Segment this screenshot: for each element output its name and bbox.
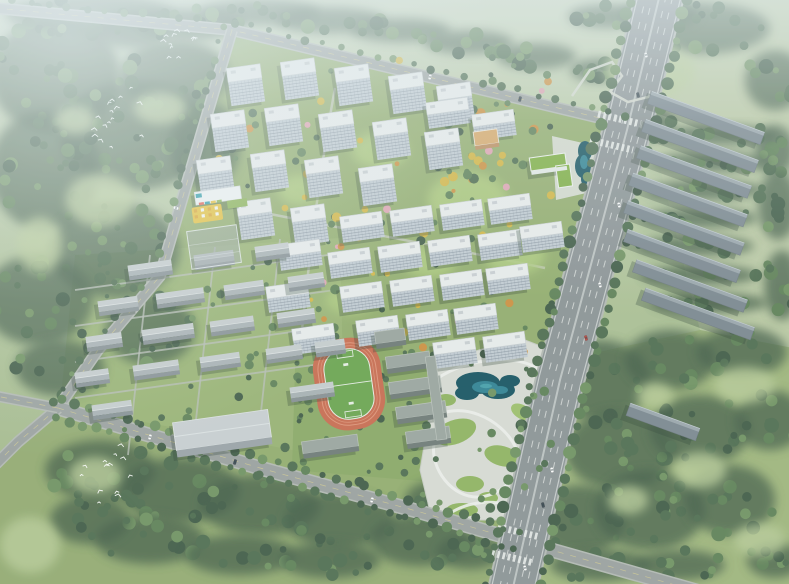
render-canvas (0, 0, 789, 584)
aerial-masterplan-render (0, 0, 789, 584)
atmosphere-layer (0, 0, 789, 584)
color-veil (0, 0, 789, 584)
